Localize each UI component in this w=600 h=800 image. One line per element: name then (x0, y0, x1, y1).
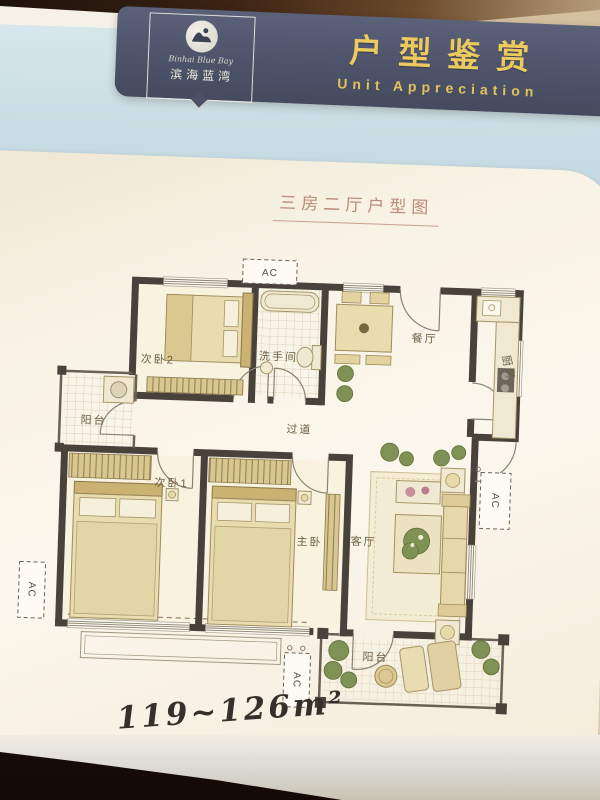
lounge-mat (427, 641, 461, 692)
header-title-cn: 户型鉴赏 (274, 21, 600, 83)
ac-label-left: AC (25, 582, 37, 598)
brand-badge: Binhai Blue Bay 滨海蓝湾 (146, 12, 256, 102)
floorplan-page: 三房二厅户型图 (0, 150, 600, 772)
living-furniture (365, 443, 472, 645)
bathtub-icon (261, 291, 320, 313)
kitchen-sink (483, 300, 502, 316)
ac-label-top: AC (262, 268, 278, 280)
master-tv-cabinet (323, 494, 340, 590)
sink-icon (260, 362, 272, 374)
room-label-master: 主卧 (296, 535, 322, 549)
bed2-dresser (147, 377, 243, 395)
room-label-bed1: 次卧1 (154, 475, 189, 490)
ac-label-right: AC (489, 493, 501, 509)
sofa (440, 504, 468, 607)
badge-logo-icon (185, 20, 218, 53)
master-wardrobe (209, 458, 292, 485)
room-label-balcony-bottom: 阳台 (362, 649, 388, 664)
plan-title: 三房二厅户型图 (273, 188, 440, 227)
plan-title-wrap: 三房二厅户型图 (216, 186, 497, 229)
balcony-left-furniture (103, 376, 134, 403)
round-table (375, 665, 398, 688)
badge-script-name: Binhai Blue Bay (168, 54, 233, 66)
badge-cn-name: 滨海蓝湾 (166, 65, 235, 85)
room-label-corridor: 过道 (286, 422, 312, 437)
ac-label-bottom: AC (290, 672, 302, 688)
room-label-bed2: 次卧2 (141, 351, 176, 366)
room-label-bathroom: 洗手间 (259, 349, 298, 364)
dining-furniture (333, 291, 393, 403)
room-label-balcony-left: 阳台 (80, 412, 106, 427)
bed1-wardrobe (69, 453, 152, 480)
brochure-photo: Binhai Blue Bay 滨海蓝湾 户型鉴赏 Unit Appreciat… (0, 0, 600, 800)
floor-plan-diagram: AC AC AC AC 次卧2 洗手间 餐厅 厨房 (1, 231, 557, 720)
header-titles: 户型鉴赏 Unit Appreciation (273, 21, 600, 103)
room-label-dining: 餐厅 (411, 331, 437, 346)
room-label-living: 客厅 (350, 534, 376, 549)
